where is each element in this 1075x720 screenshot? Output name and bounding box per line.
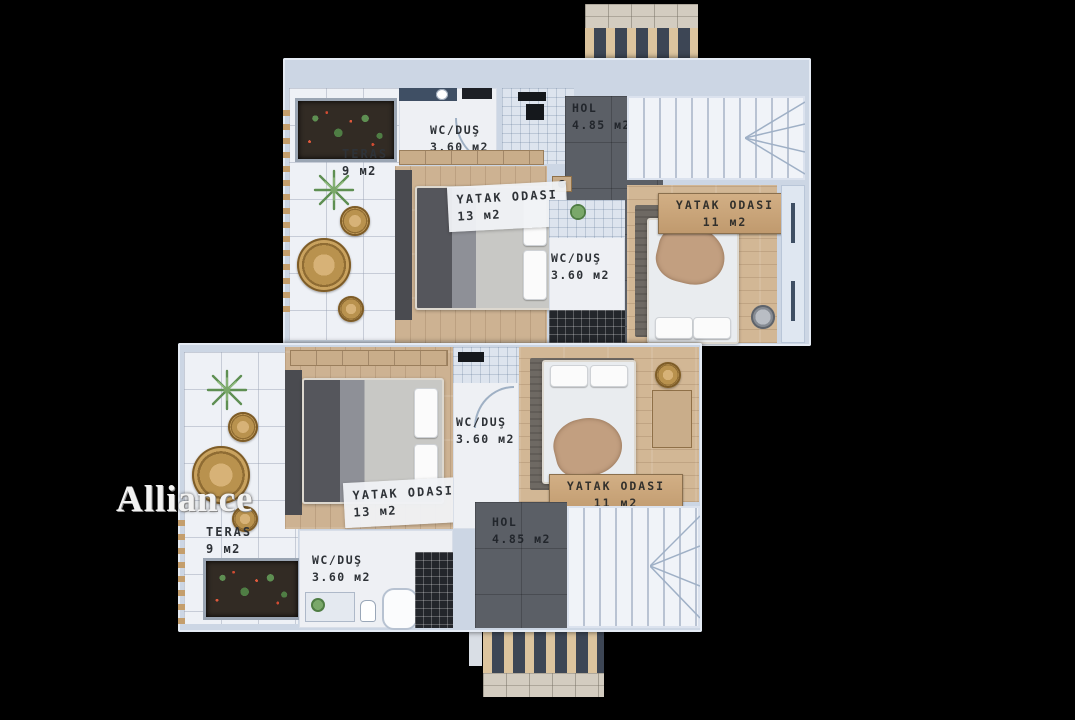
wardrobe-dark	[395, 170, 412, 320]
room-label-wc-inner-lower: WC/DUŞ 3.60 м2	[456, 414, 515, 447]
flower-decor	[311, 598, 325, 612]
beige-throw	[548, 411, 628, 484]
washbasin	[436, 89, 448, 100]
floor-plan-canvas: TERAS 9 м2 WC/DUŞ 3.60 м2 HOL 4.85 м2 YA…	[0, 0, 1075, 720]
room-label-teras-lower: TERAS 9 м2	[206, 524, 252, 559]
bath-fixture	[458, 352, 484, 362]
rattan-round-chair	[297, 238, 351, 292]
room-area: 3.60 м2	[456, 431, 515, 448]
floor-lamp	[751, 305, 775, 329]
bathtub	[382, 588, 418, 630]
pillow	[550, 365, 588, 387]
room-area: 3.60 м2	[551, 267, 610, 284]
exterior-pergola-bottom	[483, 623, 604, 697]
room-label-teras-upper: TERAS 9 м2	[342, 146, 388, 181]
stone-wall	[483, 673, 604, 697]
bath-plant	[570, 204, 586, 220]
pillow	[523, 250, 547, 300]
shower-fixture	[518, 92, 546, 101]
bed-double	[542, 360, 636, 484]
room-label-bedroom13-lower: YATAK ODASI 13 м2	[343, 477, 465, 528]
room-area: 3.60 м2	[312, 569, 371, 586]
bed-double	[647, 218, 739, 344]
pillow	[693, 317, 731, 339]
terrace-edge-slats	[283, 110, 290, 320]
bath-tile-zone	[549, 200, 625, 238]
room-label-wc-entrance-lower: WC/DUŞ 3.60 м2	[312, 552, 371, 585]
rattan-stool	[228, 412, 258, 442]
palm-plant-icon	[203, 366, 251, 414]
room-name: YATAK ODASI	[550, 478, 682, 495]
vanity-dark	[462, 88, 492, 99]
pillow	[590, 365, 628, 387]
shower-floor	[415, 552, 453, 628]
room-name: TERAS	[206, 524, 252, 541]
stair-winder-lines	[745, 96, 805, 180]
room-area: 9 м2	[342, 163, 388, 180]
room-name: WC/DUŞ	[312, 552, 371, 569]
stone-wall	[585, 4, 698, 28]
alliance-watermark: Alliance	[116, 478, 253, 521]
vanity-unit	[305, 592, 355, 622]
shower-floor	[549, 310, 625, 343]
room-name: HOL	[572, 100, 631, 117]
planter-box	[203, 558, 301, 620]
rattan-stool	[338, 296, 364, 322]
shower-fixture	[526, 104, 544, 120]
wardrobe	[399, 150, 544, 165]
room-label-hol-lower: HOL 4.85 м2	[492, 514, 551, 547]
wardrobe-dark	[285, 370, 302, 515]
room-name: WC/DUŞ	[551, 250, 610, 267]
rattan-stool	[340, 206, 370, 236]
terrace-edge-slats	[178, 520, 185, 624]
stair-winder-lines	[650, 506, 700, 628]
wardrobe	[290, 350, 448, 366]
pillow	[655, 317, 693, 339]
room-name: WC/DUŞ	[430, 122, 489, 139]
room-area: 4.85 м2	[492, 531, 551, 548]
room-area: 11 м2	[659, 214, 791, 231]
room-label-wc-inner-upper: WC/DUŞ 3.60 м2	[551, 250, 610, 283]
room-area: 9 м2	[206, 541, 252, 558]
room-label-bedroom11-upper: YATAK ODASI 11 м2	[658, 193, 792, 234]
room-name: TERAS	[342, 146, 388, 163]
room-name: WC/DUŞ	[456, 414, 515, 431]
desk	[652, 390, 692, 448]
bath-counter	[399, 88, 457, 101]
window-band	[781, 185, 805, 343]
toilet	[360, 600, 376, 622]
exterior-step	[469, 630, 482, 666]
room-label-hol-upper: HOL 4.85 м2	[572, 100, 631, 133]
room-name: HOL	[492, 514, 551, 531]
room-area: 4.85 м2	[572, 117, 631, 134]
rattan-stool	[655, 362, 681, 388]
pillow	[414, 388, 438, 438]
room-name: YATAK ODASI	[659, 197, 791, 214]
